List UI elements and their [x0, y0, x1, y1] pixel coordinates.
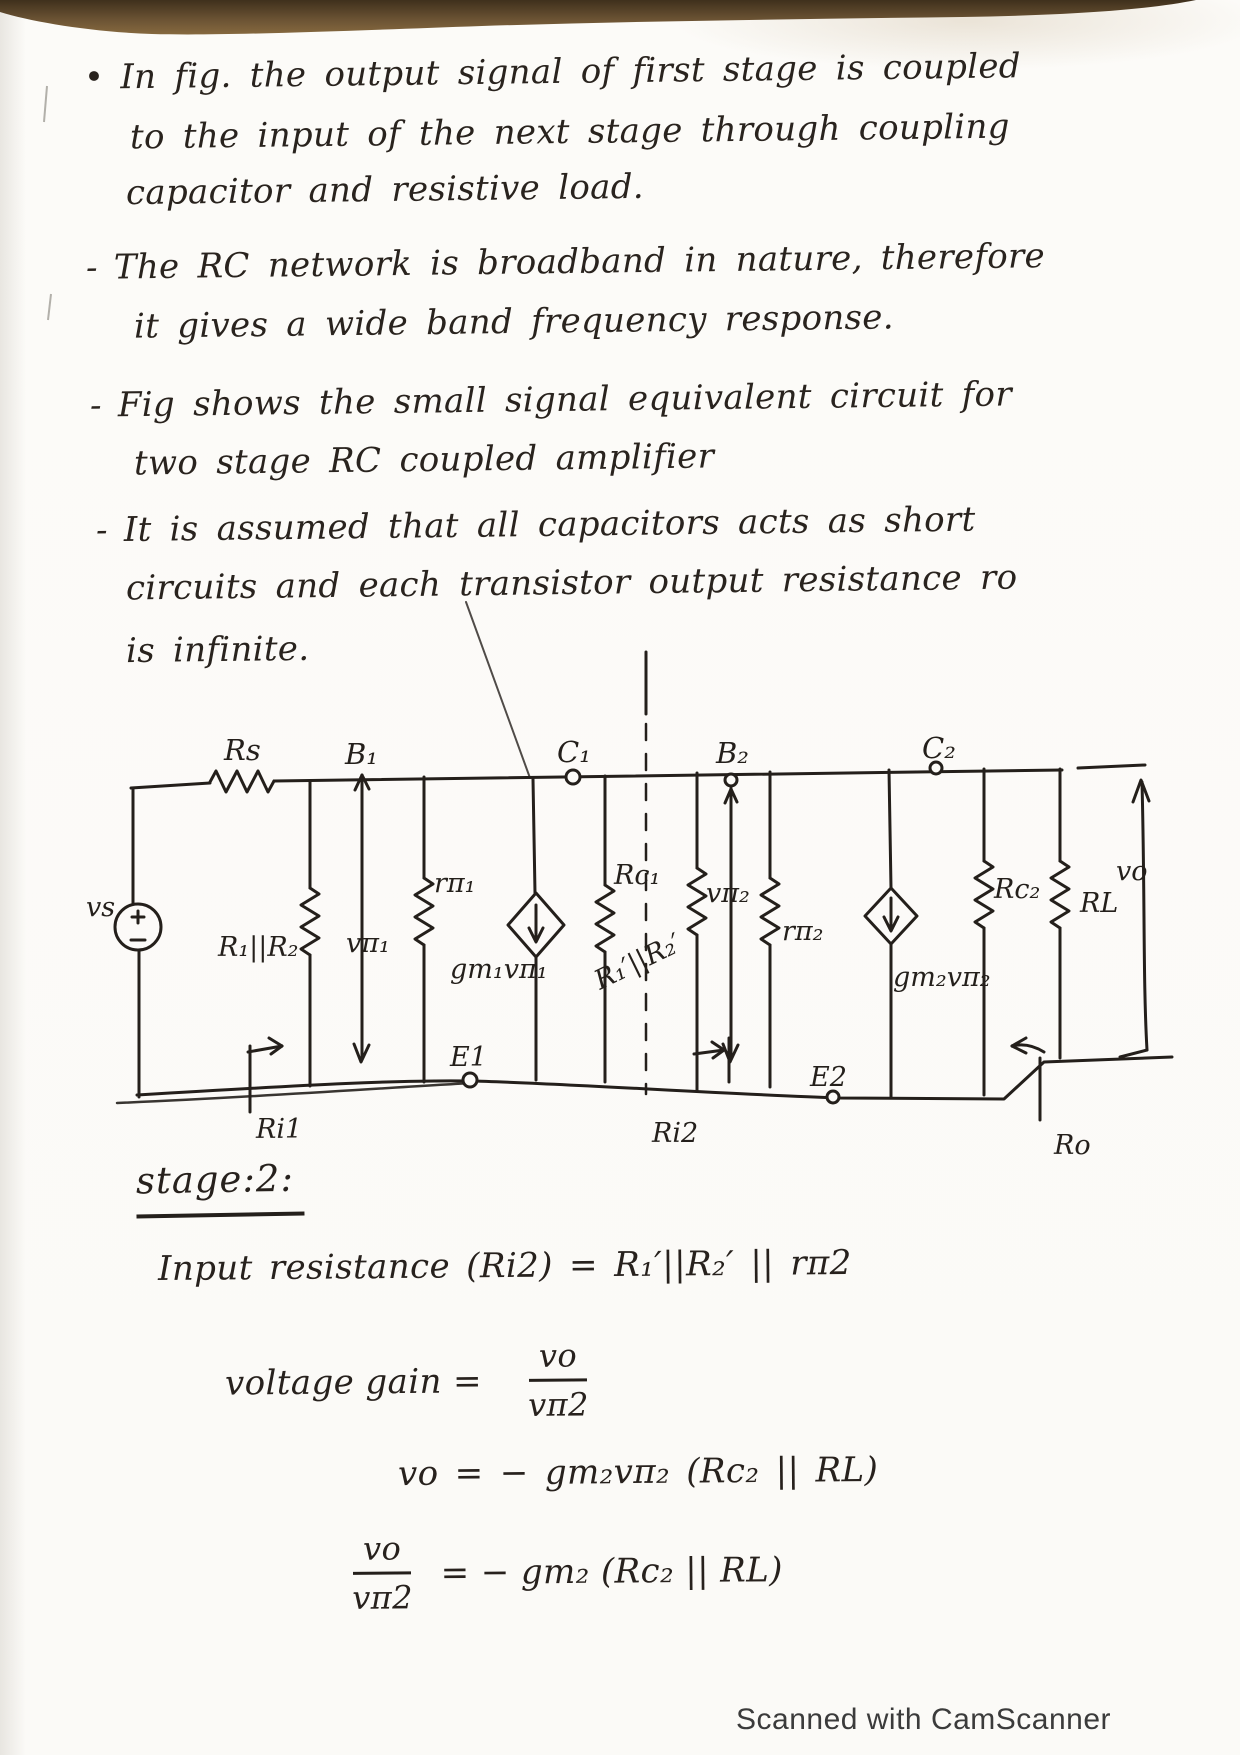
notebook-edge-band [0, 0, 1196, 34]
input-resistance-equation: Input resistance (Ri2) = R₁′||R₂′ || rπ2 [158, 1243, 852, 1289]
resistor-rc1 [596, 776, 614, 1082]
bullet-marker: - [96, 510, 108, 550]
label-rpi2: rπ₂ [782, 916, 823, 947]
top-rail [131, 765, 1145, 788]
label-vpi2: vπ₂ [706, 878, 750, 909]
resistor-rs [210, 771, 274, 792]
stage2-heading: stage:2: [135, 1157, 304, 1219]
label-ri2: Ri2 [651, 1118, 698, 1149]
label-r1r2-prime: R₁′||R₂′ [589, 928, 687, 997]
vpi2-arrow [723, 788, 738, 1062]
voltage-gain-label: voltage gain = [225, 1361, 482, 1403]
label-rc1: Rc₁ [613, 860, 660, 891]
ri1-marker [248, 1038, 282, 1112]
source-vs [115, 788, 161, 1097]
resistor-rpi1 [415, 777, 433, 1082]
bottom-rail [117, 1057, 1172, 1103]
resistor-r1r2 [301, 781, 319, 1086]
ratio-rhs: = − gm₂ (Rc₂ || RL) [441, 1550, 783, 1593]
label-rl: RL [1079, 888, 1118, 919]
source-gm2vpi2 [865, 770, 917, 1097]
bullet-marker: • [84, 57, 105, 97]
ratio-denominator: vπ2 [352, 1574, 413, 1617]
node-e1 [463, 1073, 477, 1087]
note-line: two stage RC coupled amplifier [134, 436, 715, 483]
stray-stroke [466, 602, 530, 778]
label-rs: Rs [223, 733, 261, 767]
gain-numerator: vo [529, 1336, 588, 1382]
bullet-marker: - [90, 385, 102, 425]
label-vs: vs [86, 892, 115, 923]
label-gm2vpi2: gm₂vπ₂ [893, 962, 991, 993]
gain-denominator: vπ2 [528, 1381, 589, 1424]
label-b2: B₂ [715, 736, 749, 770]
ratio-numerator: vo [353, 1529, 412, 1575]
voltage-gain-equation: voltage gain = vo vπ2 [225, 1336, 589, 1426]
bullet-marker: - [86, 248, 98, 288]
label-vpi1: vπ₁ [346, 928, 390, 959]
label-vo: vo [1116, 856, 1148, 887]
vo-branch [1120, 780, 1149, 1057]
note-line: capacitor and resistive load. [126, 167, 644, 213]
label-c1: C₁ [557, 735, 591, 769]
gain-ratio-equation: vo vπ2 = − gm₂ (Rc₂ || RL) [352, 1526, 784, 1617]
label-b1: B₁ [344, 737, 378, 771]
resistor-rc2 [975, 769, 993, 1095]
ro-marker [1012, 1038, 1044, 1120]
margin-marks [44, 86, 51, 320]
source-gm1vpi1 [508, 779, 564, 1080]
vo-equation: vo = − gm₂vπ₂ (Rc₂ || RL) [398, 1450, 879, 1494]
scanned-notes-page: vs Rs B₁ C₁ B₂ C₂ R₁||R₂ vπ₁ rπ₁ gm₁vπ₁ … [0, 0, 1240, 1755]
camscanner-watermark: Scanned with CamScanner [736, 1703, 1111, 1737]
label-ri1: Ri1 [255, 1114, 302, 1145]
resistor-rl [1051, 769, 1069, 1058]
vpi1-arrow [354, 779, 369, 1062]
resistor-r1r2-prime [688, 773, 706, 1090]
ratio-fraction: vo vπ2 [352, 1529, 413, 1617]
node-c1 [566, 770, 580, 784]
note-line: is infinite. [126, 629, 310, 671]
label-ro: Ro [1053, 1130, 1091, 1161]
gain-fraction: vo vπ2 [528, 1336, 589, 1424]
label-e1: E1 [449, 1042, 487, 1073]
label-rpi1: rπ₁ [434, 868, 475, 899]
label-rc2: Rc₂ [993, 874, 1040, 905]
label-c2: C₂ [922, 731, 956, 765]
label-r1r2: R₁||R₂ [217, 932, 299, 963]
label-gm1vpi1: gm₁vπ₁ [450, 954, 548, 985]
resistor-rpi2 [761, 772, 779, 1087]
label-e2: E2 [809, 1062, 847, 1093]
